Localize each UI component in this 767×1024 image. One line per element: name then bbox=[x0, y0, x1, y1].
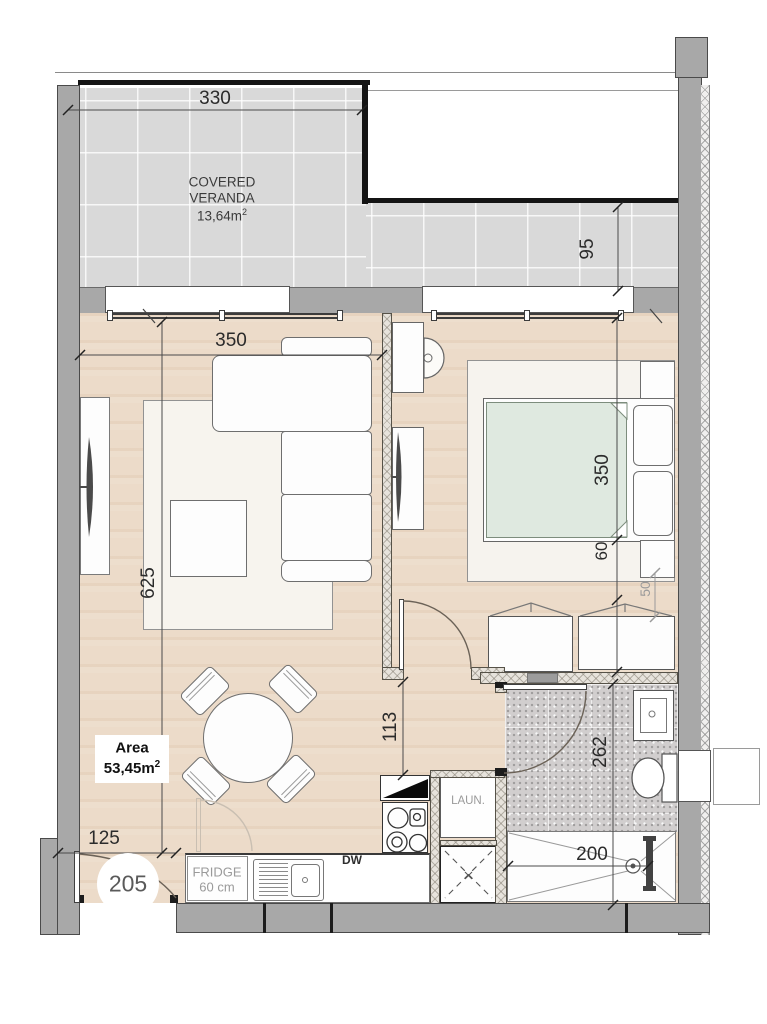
window-post bbox=[219, 310, 225, 321]
wall-seam bbox=[330, 903, 333, 933]
bathroom-door-threshold bbox=[527, 673, 558, 683]
sink-drainer bbox=[259, 863, 288, 897]
window-post bbox=[431, 310, 437, 321]
dim-side-gap: 50 bbox=[637, 581, 653, 597]
sofa-seat bbox=[281, 494, 372, 561]
wall-bottom bbox=[176, 903, 710, 933]
dim-living-width: 350 bbox=[215, 330, 247, 352]
unit-number: 205 bbox=[109, 871, 147, 898]
dim-corridor-length: 113 bbox=[380, 712, 402, 742]
wardrobe bbox=[578, 616, 675, 670]
laundry-left-wall bbox=[430, 773, 440, 905]
dim-wardrobe-depth: 60 bbox=[592, 542, 612, 561]
veranda-cutout bbox=[366, 88, 678, 198]
entry-jamb-right bbox=[170, 895, 178, 903]
laundry-label: LAUN. bbox=[451, 795, 485, 807]
wall-pillar-top-right bbox=[675, 37, 708, 78]
shaft bbox=[440, 846, 497, 903]
upper-balcony-line bbox=[55, 72, 703, 73]
veranda-label-line2: VERANDA bbox=[189, 191, 254, 206]
dim-bedroom-depth: 350 bbox=[592, 454, 614, 486]
partition-living-bedroom bbox=[382, 313, 392, 673]
bathroom-door-leaf bbox=[503, 684, 587, 690]
shower-floor bbox=[507, 831, 676, 902]
area-value-text: 53,45m bbox=[104, 760, 155, 777]
window-post bbox=[107, 310, 113, 321]
vanity-desk bbox=[392, 322, 424, 393]
dim-veranda-depth: 95 bbox=[577, 238, 599, 259]
wall-seam bbox=[625, 903, 628, 933]
sofa-chaise bbox=[212, 355, 372, 432]
nightstand bbox=[640, 361, 675, 399]
dining-table bbox=[203, 693, 293, 783]
dim-living-length: 625 bbox=[138, 567, 160, 599]
sofa-seat bbox=[281, 431, 372, 495]
tv-cabinet-living bbox=[80, 397, 110, 575]
bath-door-jamb bbox=[495, 768, 507, 776]
dim-entry-width: 125 bbox=[88, 828, 120, 850]
coffee-table bbox=[170, 500, 247, 577]
dim-shower-width: 200 bbox=[576, 844, 608, 866]
sofa-armrest bbox=[281, 560, 372, 582]
counter-corner bbox=[380, 775, 430, 801]
area-label-title: Area bbox=[115, 740, 148, 757]
bathroom-window bbox=[678, 750, 711, 802]
veranda-cutout-line bbox=[366, 90, 678, 91]
window-post bbox=[618, 310, 624, 321]
bathroom-left-wall-lower bbox=[495, 770, 507, 905]
dim-bathroom-length: 262 bbox=[590, 736, 612, 768]
dishwasher-label: DW bbox=[342, 853, 362, 867]
hob bbox=[382, 802, 428, 853]
washbasin-bowl bbox=[640, 698, 667, 733]
veranda-railing-top bbox=[78, 80, 370, 85]
entrance-door-leaf bbox=[74, 851, 80, 903]
living-window-frame bbox=[110, 313, 343, 315]
veranda-railing-mid bbox=[362, 198, 678, 203]
living-window bbox=[105, 286, 290, 313]
wall-left-outer bbox=[40, 838, 58, 935]
window-post bbox=[337, 310, 343, 321]
bathroom-window-sill bbox=[713, 748, 760, 805]
veranda-area-text: 13,64m bbox=[197, 208, 242, 223]
bed-pillow bbox=[633, 405, 673, 466]
bed-pillow bbox=[633, 471, 673, 536]
wall-left bbox=[57, 85, 80, 935]
sink-basin bbox=[291, 864, 320, 897]
window-post bbox=[524, 310, 530, 321]
ghost-door-leaf bbox=[196, 798, 201, 852]
fridge-label-line2: 60 cm bbox=[199, 880, 234, 895]
fridge-label-line1: FRIDGE bbox=[192, 865, 241, 880]
area-value-sup: 2 bbox=[155, 759, 161, 770]
bedroom-door-leaf bbox=[399, 599, 404, 670]
veranda-tile-floor-right bbox=[366, 203, 678, 287]
veranda-area-value: 13,64m2 bbox=[197, 207, 247, 224]
veranda-railing-side bbox=[362, 80, 368, 204]
bathroom-top-wall bbox=[480, 672, 678, 684]
living-window-frame bbox=[110, 317, 343, 319]
laundry-top-wall bbox=[430, 770, 505, 778]
wardrobe bbox=[488, 616, 573, 672]
bedroom-window bbox=[422, 286, 634, 313]
shaft-top-strip bbox=[440, 840, 497, 846]
tv-cabinet-bedroom bbox=[392, 427, 424, 530]
dim-veranda-width: 330 bbox=[199, 88, 231, 110]
veranda-label-line1: COVERED bbox=[189, 175, 256, 190]
sofa-back-cushion bbox=[281, 337, 372, 357]
wall-seam bbox=[263, 903, 266, 933]
area-label-value: 53,45m2 bbox=[104, 759, 160, 777]
wall-right-insulation bbox=[701, 85, 710, 935]
floor-plan: COVERED VERANDA 13,64m2 Area 53,45m2 205… bbox=[0, 0, 767, 1024]
nightstand bbox=[640, 540, 675, 578]
wall-right bbox=[678, 77, 702, 935]
veranda-area-sup: 2 bbox=[242, 207, 247, 217]
